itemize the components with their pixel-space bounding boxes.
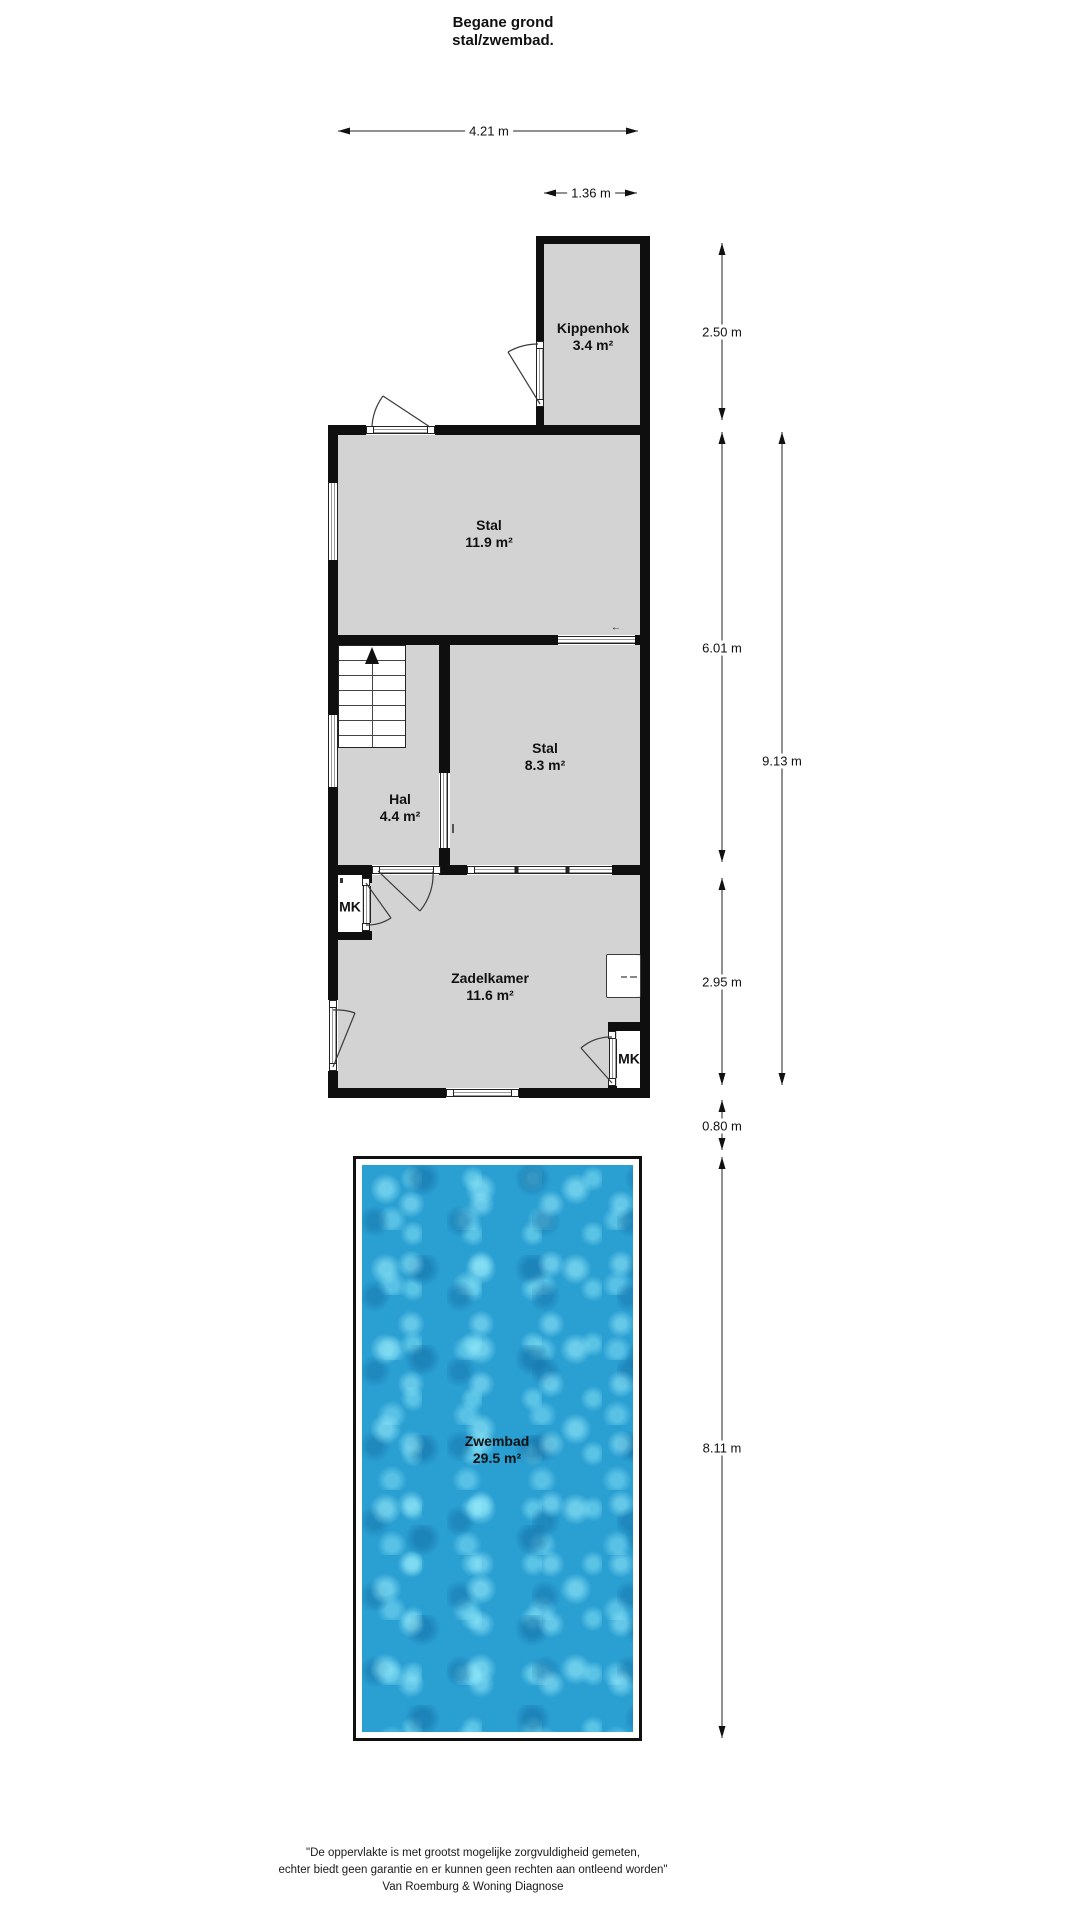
wall xyxy=(328,865,372,875)
door-jamb xyxy=(433,866,441,874)
wall xyxy=(439,635,450,773)
window xyxy=(328,483,338,560)
room-name: Zadelkamer xyxy=(451,970,529,987)
window xyxy=(328,715,338,787)
room-label-zadelkamer: Zadelkamer 11.6 m² xyxy=(451,970,529,1004)
room-name: Stal xyxy=(525,740,565,757)
door-opening xyxy=(440,773,448,848)
room-label-hal: Hal 4.4 m² xyxy=(380,791,420,825)
closet-label-mk1: MK xyxy=(339,899,361,916)
window-jamb xyxy=(511,1089,519,1097)
door-opening xyxy=(536,349,544,399)
door-opening xyxy=(374,426,427,434)
dim-building-pool-gap: 0.80 m xyxy=(698,1119,746,1134)
wall xyxy=(536,236,544,341)
dim-stal-section-height: 6.01 m xyxy=(698,641,746,656)
disclaimer-line3: Van Roemburg & Woning Diagnose xyxy=(279,1879,668,1896)
room-area: 3.4 m² xyxy=(557,337,629,354)
page-title-line1: Begane grond xyxy=(452,14,554,32)
boiler-mark xyxy=(630,976,637,978)
window xyxy=(475,866,612,874)
room-name: Kippenhok xyxy=(557,320,629,337)
window xyxy=(558,636,635,644)
dim-kippenhok-height: 2.50 m xyxy=(698,325,746,340)
disclaimer: "De oppervlakte is met grootst mogelijke… xyxy=(279,1845,668,1896)
stairs-up-arrow-icon xyxy=(365,647,379,664)
wall xyxy=(328,787,338,1000)
door-jamb xyxy=(608,1078,616,1086)
room-label-zwembad: Zwembad 29.5 m² xyxy=(465,1433,530,1467)
room-area: 29.5 m² xyxy=(465,1450,530,1467)
door-jamb xyxy=(362,878,370,886)
wall xyxy=(328,932,372,940)
door-jamb xyxy=(362,923,370,931)
wall xyxy=(608,1022,650,1031)
dim-zwembad-height: 8.11 m xyxy=(699,1441,746,1456)
wall xyxy=(640,236,650,435)
disclaimer-line1: "De oppervlakte is met grootst mogelijke… xyxy=(279,1845,668,1862)
room-label-stal-klein: Stal 8.3 m² xyxy=(525,740,565,774)
room-name: Stal xyxy=(465,517,512,534)
room-name: Zwembad xyxy=(465,1433,530,1450)
room-area: 11.9 m² xyxy=(465,534,512,551)
window-jamb xyxy=(446,1089,454,1097)
room-name: Hal xyxy=(380,791,420,808)
door-jamb xyxy=(427,426,435,434)
wall xyxy=(328,1088,446,1098)
page-title-line2: stal/zwembad. xyxy=(452,32,554,50)
wall xyxy=(435,425,650,435)
door-jamb xyxy=(366,426,374,434)
dim-kippenhok-width: 1.36 m xyxy=(567,186,615,201)
door-jamb xyxy=(372,866,380,874)
boiler-mark xyxy=(621,976,627,978)
wall xyxy=(640,425,650,1098)
wall xyxy=(608,1086,617,1090)
room-label-kippenhok: Kippenhok 3.4 m² xyxy=(557,320,629,354)
window-jamb xyxy=(467,866,475,874)
page-title: Begane grond stal/zwembad. xyxy=(452,14,554,50)
door-opening xyxy=(609,1039,617,1078)
door-jamb xyxy=(536,399,544,407)
wall xyxy=(635,635,650,645)
floorplan-page: Begane grond stal/zwembad. xyxy=(0,0,1080,1920)
door-jamb xyxy=(608,1031,616,1039)
wall xyxy=(328,425,338,483)
wall xyxy=(536,236,650,244)
wall xyxy=(519,1088,650,1098)
room-area: 11.6 m² xyxy=(451,987,529,1004)
door-jamb xyxy=(329,1000,337,1008)
room-label-stal-groot: Stal 11.9 m² xyxy=(465,517,512,551)
dim-total-width: 4.21 m xyxy=(465,124,513,139)
room-area: 8.3 m² xyxy=(525,757,565,774)
wall xyxy=(612,865,650,875)
door-jamb xyxy=(329,1063,337,1071)
direction-arrow-icon: ← xyxy=(611,623,621,633)
door-opening xyxy=(380,866,433,874)
door-opening xyxy=(363,886,371,923)
window xyxy=(454,1089,511,1097)
dim-building-height: 9.13 m xyxy=(758,754,806,769)
closet-label-mk2: MK xyxy=(618,1051,640,1068)
door-jamb xyxy=(536,341,544,349)
room-area: 4.4 m² xyxy=(380,808,420,825)
dim-zadelkamer-height: 2.95 m xyxy=(698,975,746,990)
staircase xyxy=(338,645,406,748)
disclaimer-line2: echter biedt geen garantie en er kunnen … xyxy=(279,1862,668,1879)
stair-divider xyxy=(372,663,373,747)
door-opening xyxy=(329,1008,337,1063)
boiler-unit xyxy=(606,954,641,998)
